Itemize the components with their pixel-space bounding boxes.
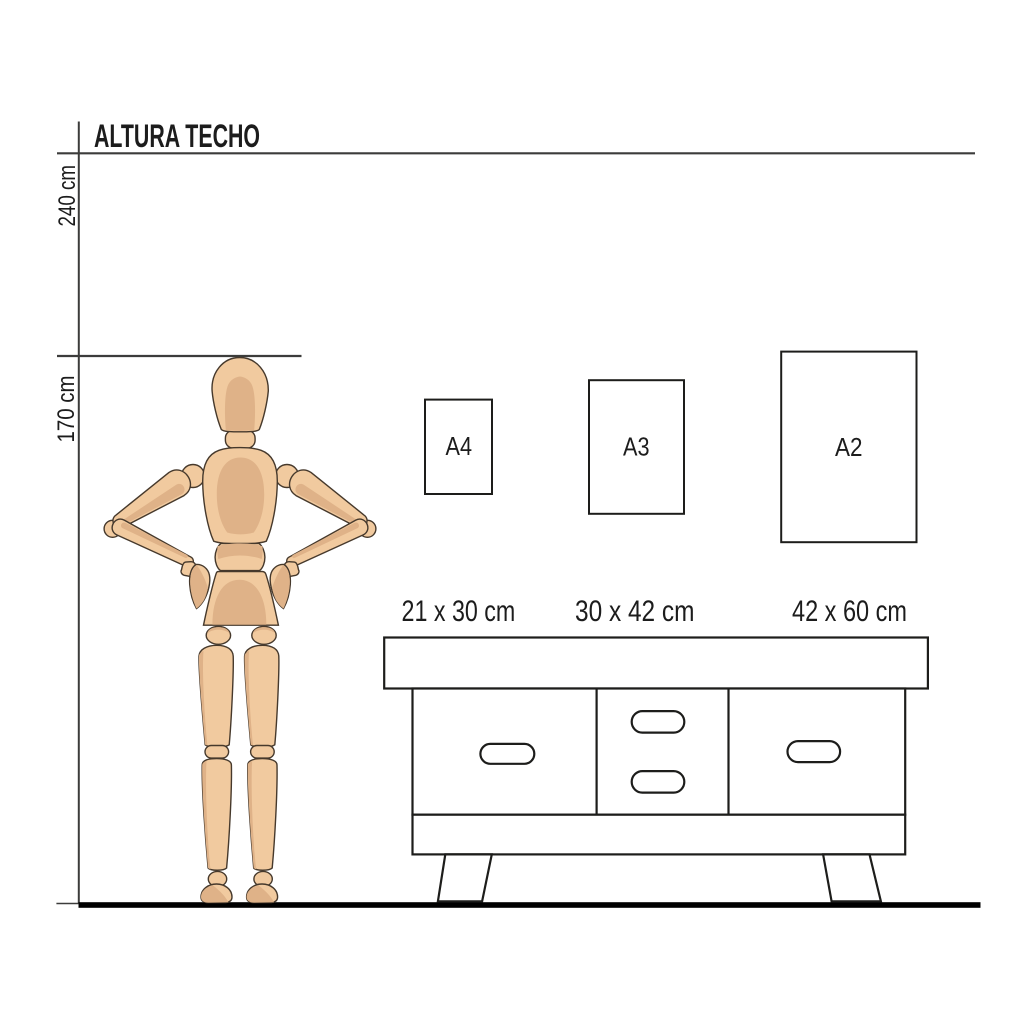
svg-text:ALTURA TECHO: ALTURA TECHO	[94, 118, 260, 154]
svg-text:A3: A3	[623, 432, 650, 462]
svg-text:42 x 60 cm: 42 x 60 cm	[792, 595, 907, 628]
svg-text:21 x 30 cm: 21 x 30 cm	[402, 595, 516, 628]
svg-text:240 cm: 240 cm	[54, 165, 81, 227]
svg-text:170 cm: 170 cm	[53, 376, 80, 443]
svg-text:30 x 42 cm: 30 x 42 cm	[575, 595, 695, 628]
svg-text:A2: A2	[835, 432, 863, 462]
svg-text:A4: A4	[446, 431, 473, 461]
